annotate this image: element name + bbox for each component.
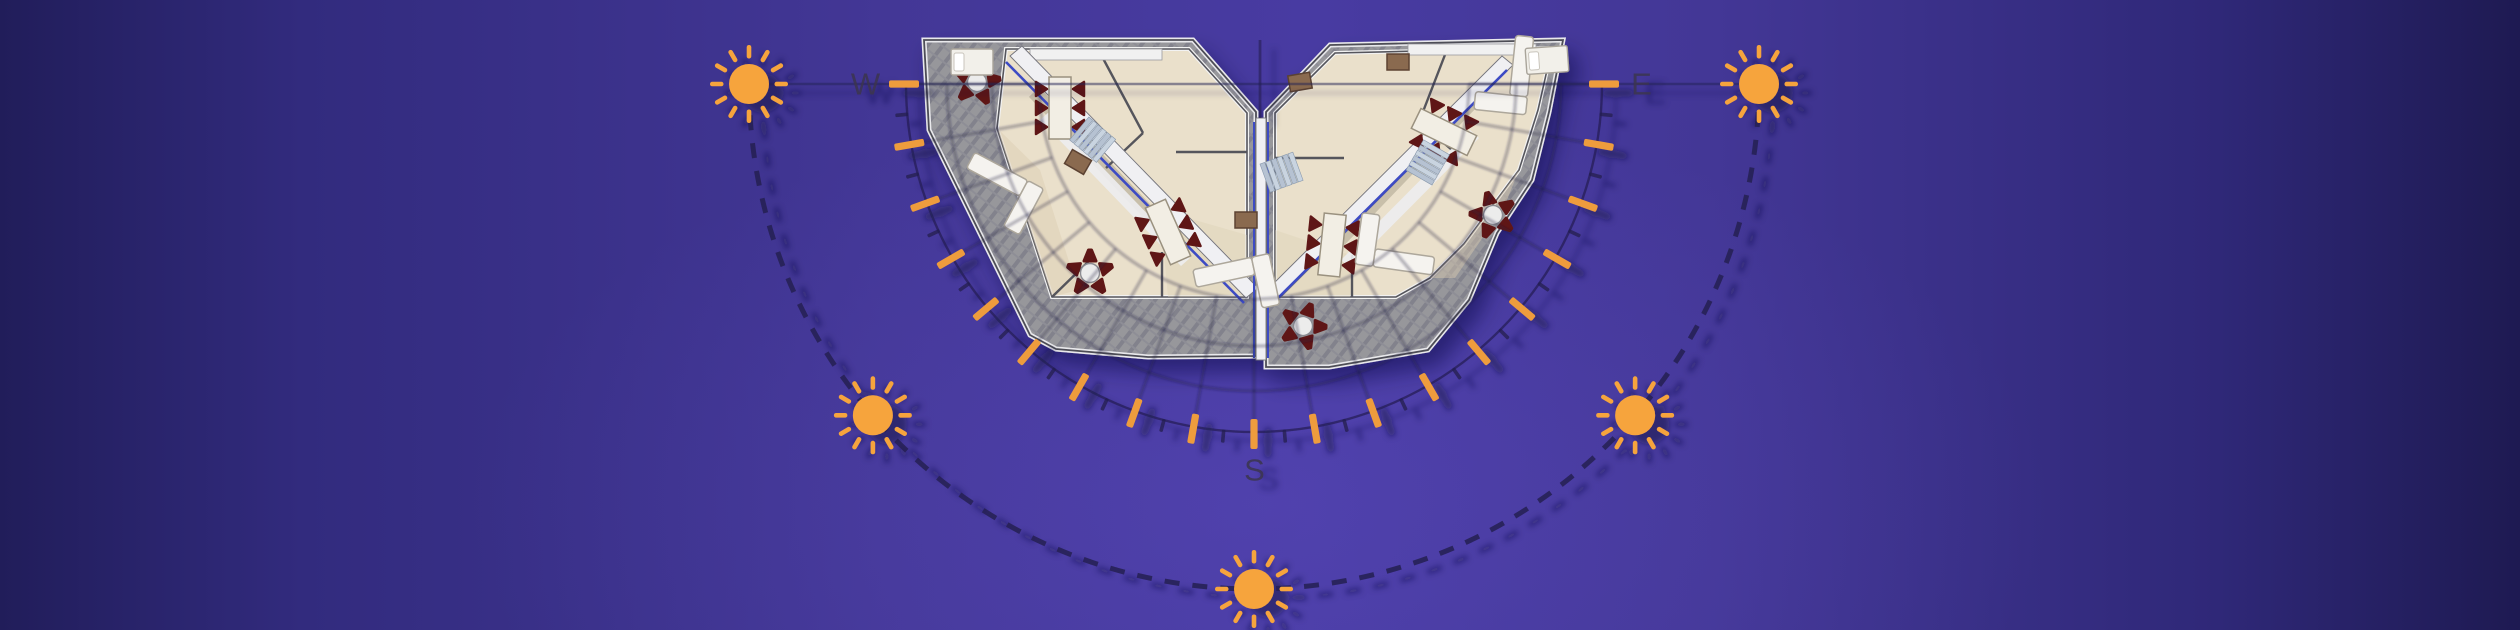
sun-icon (1215, 550, 1293, 628)
furniture-wood-table (1235, 212, 1257, 228)
furniture-bed (951, 49, 993, 75)
sun-icon (710, 45, 788, 123)
furniture-bed (1525, 46, 1569, 75)
protractor-tick (1068, 372, 1089, 402)
protractor-tick (1250, 419, 1257, 449)
compass-label-west: W (851, 67, 881, 102)
protractor-tick (1309, 413, 1321, 444)
protractor-tick (1418, 372, 1439, 402)
sun-path-floorplan-diagram: W E S (0, 0, 2520, 630)
sun-icon (1720, 45, 1798, 123)
wall-strip-left (1030, 49, 1162, 60)
protractor-tick (1542, 248, 1572, 269)
slide-background: W E S (0, 0, 2520, 630)
floor-plan (924, 32, 1569, 367)
furniture-wood-table (1387, 54, 1409, 70)
protractor-tick (894, 139, 925, 151)
furniture-wood-table (1288, 72, 1312, 92)
protractor-tick (936, 248, 966, 269)
center-spine-wall (1254, 118, 1268, 360)
protractor-tick (1187, 413, 1199, 444)
protractor-tick (1583, 139, 1614, 151)
protractor-tick (889, 80, 919, 87)
compass-label-south: S (1244, 453, 1266, 488)
compass-label-east: E (1631, 67, 1653, 102)
protractor-tick (1589, 80, 1619, 87)
